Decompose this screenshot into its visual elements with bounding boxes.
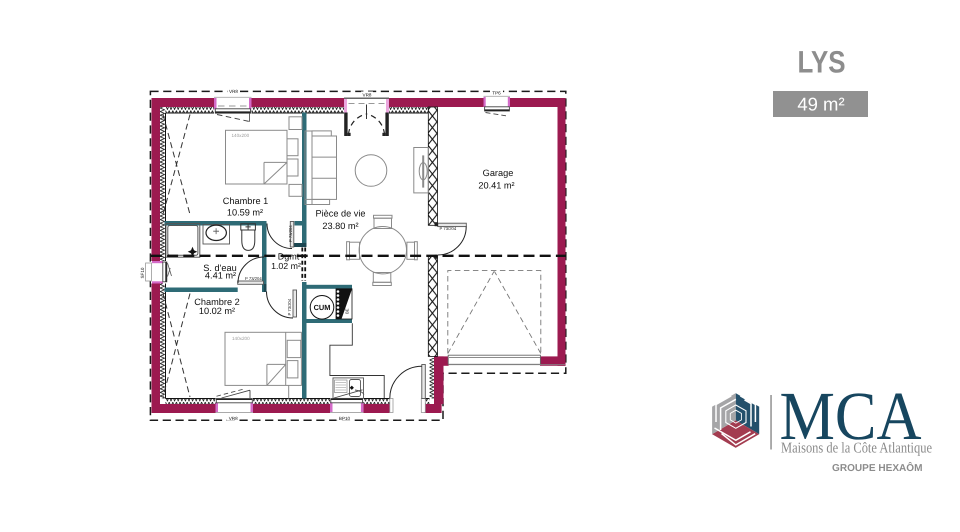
svg-text:49 m²: 49 m² — [797, 94, 844, 115]
svg-text:CUM: CUM — [314, 303, 331, 312]
svg-text:VR8: VR8 — [229, 416, 238, 421]
svg-text:P 73/204: P 73/204 — [245, 276, 262, 281]
svg-text:1.02 m²: 1.02 m² — [271, 261, 301, 271]
svg-text:Maisons de la Côte Atlantique: Maisons de la Côte Atlantique — [781, 441, 932, 457]
svg-text:VR8: VR8 — [363, 92, 372, 97]
svg-text:SF10: SF10 — [140, 267, 145, 278]
svg-text:GROUPE HEXAÔM: GROUPE HEXAÔM — [832, 462, 923, 474]
svg-text:4.41 m²: 4.41 m² — [205, 271, 236, 281]
svg-text:Chambre 1: Chambre 1 — [223, 196, 268, 206]
svg-text:10.59 m²: 10.59 m² — [227, 208, 263, 218]
svg-text:TP6: TP6 — [492, 90, 501, 95]
svg-text:Garage: Garage — [483, 168, 514, 178]
svg-text:23.80 m²: 23.80 m² — [322, 221, 358, 231]
svg-text:BE: BE — [345, 308, 350, 314]
svg-text:P 73/204: P 73/204 — [440, 226, 457, 231]
svg-text:10.02 m²: 10.02 m² — [199, 306, 235, 316]
svg-text:Dgmt: Dgmt — [278, 252, 300, 262]
svg-text:BP10: BP10 — [339, 416, 351, 421]
svg-text:Pièce de vie: Pièce de vie — [315, 209, 365, 219]
svg-text:P 73/204: P 73/204 — [287, 298, 292, 315]
svg-text:20.41 m²: 20.41 m² — [478, 181, 514, 191]
svg-text:VR8: VR8 — [229, 89, 238, 94]
svg-text:140x200: 140x200 — [232, 133, 250, 138]
svg-text:140x200: 140x200 — [232, 336, 250, 341]
svg-text:LYS: LYS — [798, 45, 846, 80]
svg-text:P 73/204: P 73/204 — [288, 225, 293, 242]
